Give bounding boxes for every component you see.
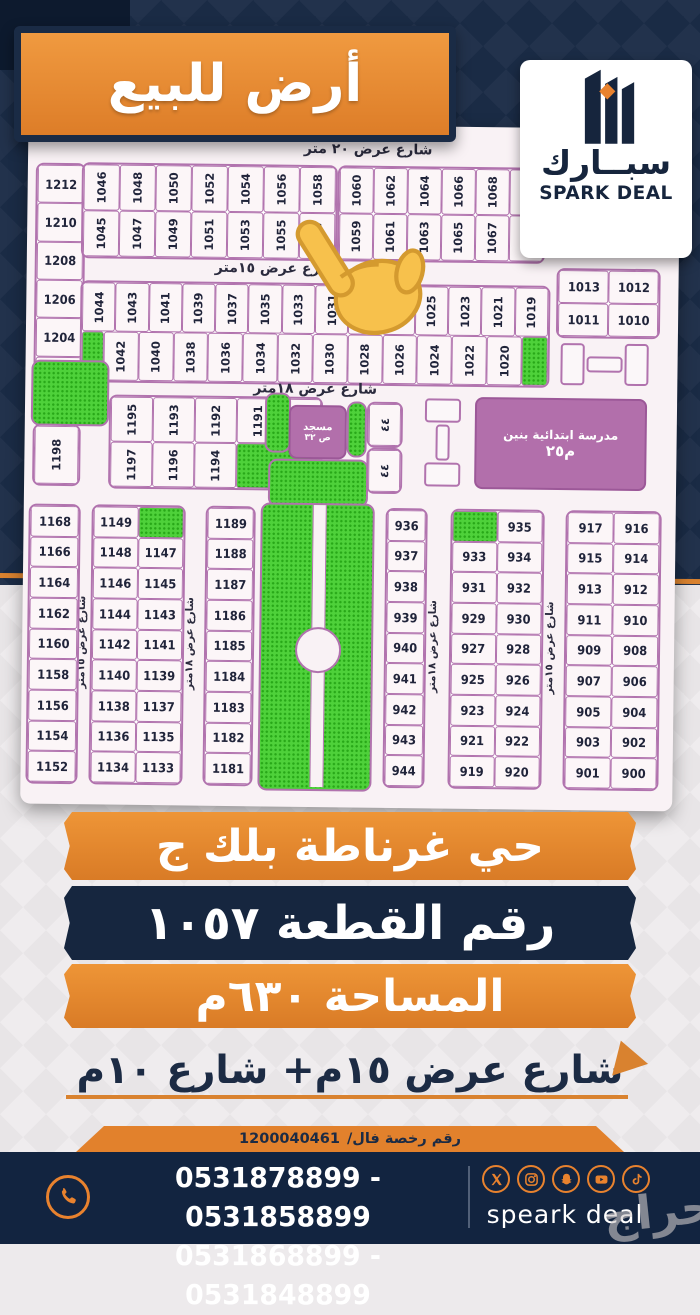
plot-cell: 1193 — [153, 397, 196, 443]
plot-cell: 1143 — [137, 599, 182, 630]
plot-cell: 1182 — [205, 722, 251, 753]
plot-cell: 1184 — [206, 661, 252, 692]
logo-arabic-text: سبــارك — [541, 146, 671, 179]
plot-cell: 1206 — [36, 280, 82, 319]
plot-cell: 1210 — [37, 203, 83, 242]
plot-cell: 1142 — [92, 629, 137, 660]
plot-cell: 1043 — [115, 283, 149, 332]
plot-cell: 1068 — [475, 169, 510, 215]
plot-cell: 1156 — [28, 690, 76, 721]
plot-cell: 1010 — [608, 304, 658, 338]
park — [31, 360, 110, 427]
license-label: رقم رخصة فال/ — [347, 1131, 461, 1147]
plot-cell: 944 — [384, 755, 422, 786]
plot-cell: 1035 — [248, 284, 282, 333]
plot-cell: 1133 — [135, 752, 180, 783]
plot-cell: 901 — [564, 757, 610, 788]
plot-cell: 1188 — [207, 538, 253, 569]
plot-cell: 1186 — [206, 600, 252, 631]
plot-cell: 912 — [613, 574, 659, 605]
park — [264, 392, 291, 452]
plot-cell: 931 — [452, 572, 497, 603]
road-shape — [560, 343, 649, 386]
plot-cell: 1141 — [137, 630, 182, 661]
plot-cell: 1208 — [37, 241, 83, 280]
school: مدرسة ابتدائية بنينم٢٥ — [474, 397, 647, 491]
plot-cell: 1019 — [515, 287, 549, 336]
plot-number-banner: رقم القطعة ١٠٥٧ — [64, 886, 636, 960]
plot-cell: 1154 — [28, 720, 76, 751]
park — [346, 401, 367, 457]
plot-cell: 1212 — [37, 165, 83, 204]
plot-cell: 906 — [612, 666, 658, 697]
col-917: 9179169159149139129119109099089079069059… — [562, 510, 661, 791]
plot-cell: 1189 — [207, 508, 253, 539]
plot-cell: 929 — [451, 603, 496, 634]
plot-cell: 1036 — [208, 333, 243, 382]
plot-cell: 1054 — [227, 166, 264, 212]
plot-cell: 1183 — [205, 692, 251, 723]
park — [268, 458, 369, 507]
plot-cell: 1146 — [93, 568, 138, 599]
plot-cell: 1051 — [191, 212, 228, 258]
plot-cell: 1040 — [138, 332, 173, 381]
plot-cell: 916 — [613, 513, 659, 544]
instagram-icon — [517, 1165, 545, 1193]
plot-cell: 927 — [451, 633, 496, 664]
phone-numbers: 0531878899 - 0531858899 0531868899 - 053… — [100, 1159, 457, 1315]
mosque: مسجدص ٣٢ — [288, 405, 347, 460]
plot-cell: 1195 — [111, 397, 154, 443]
plot-cell: 1065 — [441, 215, 476, 261]
plot-cell: 1011 — [558, 303, 608, 337]
footer-divider — [468, 1166, 470, 1228]
area-banner: المساحة ٦٣٠م — [64, 964, 636, 1028]
plot-cell: 1181 — [204, 753, 250, 784]
plot-cell: 919 — [449, 756, 494, 787]
x-icon — [482, 1165, 510, 1193]
plot-cell: 1136 — [91, 721, 136, 752]
plot-cell: 907 — [566, 665, 612, 696]
plot-cell: 1158 — [29, 659, 77, 690]
plot-cell: 940 — [386, 633, 424, 664]
park-cell — [452, 511, 497, 542]
plot-cell: 935 — [497, 511, 542, 542]
plot-cell: 934 — [497, 542, 542, 573]
snapchat-icon — [552, 1165, 580, 1193]
plot-cell: 1020 — [486, 336, 521, 385]
plot-cell: 1197 — [110, 442, 153, 488]
note-underline — [66, 1095, 628, 1099]
plot-cell: 1162 — [29, 598, 77, 629]
phone-line-1: 0531878899 - 0531858899 — [100, 1159, 457, 1237]
logo-english-text: SPARK DEAL — [539, 183, 673, 204]
phone-icon — [46, 1175, 90, 1219]
col-1149: 1149114811471146114511441143114211411140… — [88, 504, 185, 785]
plot-cell: 1135 — [136, 722, 181, 753]
plot-cell: 941 — [386, 663, 424, 694]
title-banner: أرض للبيع — [14, 26, 456, 142]
plot-cell: 943 — [385, 725, 423, 756]
plot-cell: 939 — [386, 602, 424, 633]
license-strip: رقم رخصة فال/ 1200040461 — [76, 1126, 624, 1152]
plot-cell: 1041 — [148, 283, 182, 332]
plot-cell: 1024 — [417, 335, 452, 384]
plot-cell: 1152 — [27, 751, 75, 782]
plot-cell: 1049 — [155, 211, 192, 257]
roundabout — [295, 627, 342, 674]
col-933: 9359339349319329299309279289259269239249… — [447, 509, 544, 790]
plot-cell: 913 — [567, 573, 613, 604]
park-cell — [521, 337, 548, 386]
cell-1198: 1198 — [32, 424, 81, 487]
plot-cell: 1187 — [207, 569, 253, 600]
plot-cell: 1194 — [194, 443, 237, 489]
plot-cell: 915 — [567, 543, 613, 574]
plot-cell: 911 — [566, 604, 612, 635]
plot-cell: 1045 — [83, 210, 120, 256]
plot-cell: 942 — [385, 694, 423, 725]
plot-cell: 905 — [565, 696, 611, 727]
watermark-text: حراج — [601, 1178, 700, 1243]
plot-cell: 928 — [496, 634, 541, 665]
plot-cell: 1039 — [182, 283, 216, 332]
plot-cell: 921 — [450, 725, 495, 756]
plot-cell: 1067 — [475, 215, 510, 261]
park — [257, 502, 375, 791]
plot-cell: 1140 — [92, 660, 137, 691]
plot-cell: 1034 — [243, 333, 278, 382]
plot-cell: 908 — [612, 635, 658, 666]
plot-cell: 900 — [610, 758, 656, 789]
plot-cell: 909 — [566, 635, 612, 666]
plot-cell: 1166 — [30, 536, 78, 567]
col-936: 936937938939940941942943944 — [382, 508, 427, 788]
plot-cell: 1038 — [173, 332, 208, 381]
plot-cell: 924 — [495, 695, 540, 726]
plot-cell: 1037 — [215, 284, 249, 333]
plot-cell: 1198 — [34, 426, 79, 485]
road-shape — [424, 398, 461, 486]
plot-cell: ٤٤ — [368, 450, 401, 492]
park-cell — [138, 507, 183, 538]
plot-cell: 920 — [494, 757, 539, 788]
plot-cell: 930 — [496, 603, 541, 634]
utility-cell: ٤٤ — [366, 448, 403, 494]
plot-cell: 1044 — [82, 282, 116, 331]
plot-cell: 926 — [496, 665, 541, 696]
plot-cell: 1138 — [91, 690, 136, 721]
footer-bar: 0531878899 - 0531858899 0531868899 - 053… — [0, 1152, 700, 1244]
plot-cell: 917 — [567, 512, 613, 543]
phone-line-2: 0531868899 - 0531848899 — [100, 1237, 457, 1315]
plot-cell: 1047 — [119, 211, 156, 257]
plot-cell: ٤٤ — [369, 404, 402, 446]
plot-cell: 938 — [387, 571, 425, 602]
plot-cell: 1164 — [30, 567, 78, 598]
plot-cell: 1204 — [36, 318, 82, 357]
utility-cell: ٤٤ — [367, 402, 404, 448]
plot-cell: 1192 — [195, 398, 238, 444]
plot-cell: 1185 — [206, 630, 252, 661]
street-note: شارع عرض ١٥م+ شارع ١٠م — [30, 1048, 670, 1093]
plot-cell: 910 — [612, 605, 658, 636]
plot-cell: 922 — [495, 726, 540, 757]
plot-cell: 1058 — [299, 167, 336, 213]
plot-cell: 1147 — [138, 538, 183, 569]
plot-cell: 1145 — [138, 568, 183, 599]
plot-cell: 933 — [452, 541, 497, 572]
spark-deal-logo: سبــارك SPARK DEAL — [520, 60, 692, 258]
plot-cell: 932 — [497, 573, 542, 604]
plot-cell: 1134 — [90, 752, 135, 783]
title-text: أرض للبيع — [108, 54, 363, 114]
plot-cell: 1149 — [93, 506, 138, 537]
license-number: 1200040461 — [239, 1131, 340, 1147]
plot-cell: 1139 — [137, 660, 182, 691]
building-icon — [562, 64, 650, 150]
plot-cell: 1050 — [155, 165, 192, 211]
plot-cell: 1160 — [29, 628, 77, 659]
plot-cell: 1148 — [93, 537, 138, 568]
plot-cell: 1022 — [452, 336, 487, 385]
street-label: شارع عرض ٢٠ متر — [208, 140, 528, 160]
plot-cell: 903 — [565, 727, 611, 758]
left-strip-bottom: 116811661164116211601158115611541152 — [25, 504, 80, 785]
plot-cell: 1144 — [92, 598, 137, 629]
plot-cell: 925 — [451, 664, 496, 695]
corner-block: 1013101210111010 — [556, 268, 661, 339]
plot-cell: 1056 — [263, 166, 300, 212]
plot-cell: 1066 — [441, 169, 476, 215]
plot-cell: 1012 — [608, 271, 658, 305]
plot-cell: 904 — [611, 697, 657, 728]
plot-cell: 1023 — [448, 287, 482, 336]
plot-cell: 914 — [613, 543, 659, 574]
plot-cell: 1168 — [30, 506, 78, 537]
plot-cell: 1048 — [119, 165, 156, 211]
plot-cell: 902 — [611, 727, 657, 758]
col-1189: 118911881187118611851184118311821181 — [202, 506, 255, 787]
plot-cell: 1196 — [152, 442, 195, 488]
plot-cell: 1053 — [227, 212, 264, 258]
plot-cell: 923 — [450, 695, 495, 726]
plot-cell: 1052 — [191, 166, 228, 212]
plot-cell: 1013 — [558, 270, 608, 304]
plot-cell: 1137 — [136, 691, 181, 722]
plot-cell: 937 — [387, 541, 425, 572]
plot-cell: 1046 — [83, 164, 120, 210]
plot-cell: 936 — [387, 510, 425, 541]
plot-cell: 1021 — [481, 287, 515, 336]
district-banner: حي غرناطة بلك ج — [64, 812, 636, 880]
